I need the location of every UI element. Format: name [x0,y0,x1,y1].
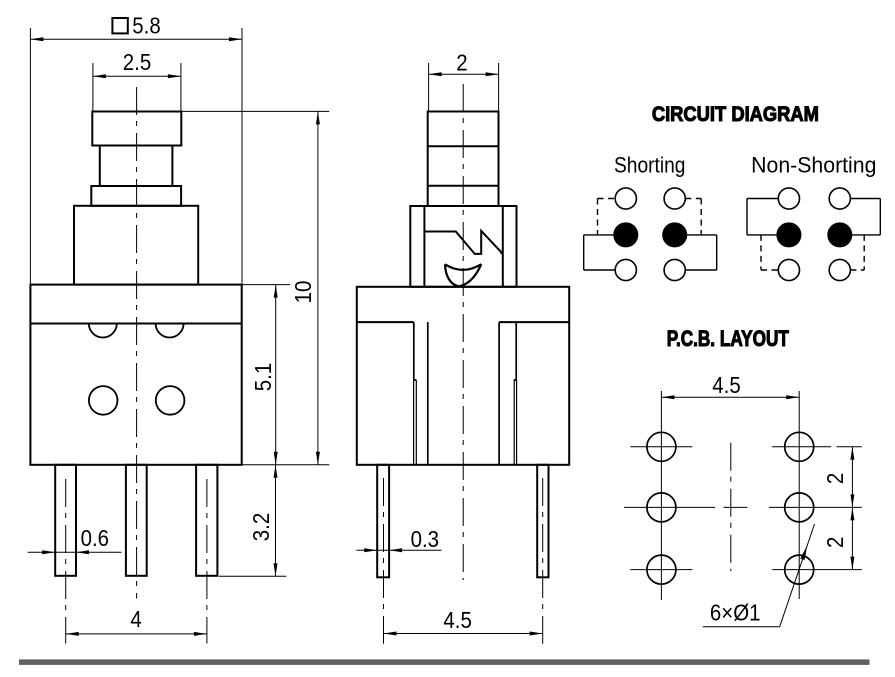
svg-text:2: 2 [822,473,849,484]
svg-text:0.6: 0.6 [81,525,109,552]
svg-text:2: 2 [456,49,467,76]
svg-text:P.C.B. LAYOUT: P.C.B. LAYOUT [667,327,789,352]
svg-text:Non-Shorting: Non-Shorting [751,152,876,178]
svg-text:CIRCUIT DIAGRAM: CIRCUIT DIAGRAM [652,103,819,127]
svg-text:2: 2 [822,537,849,548]
svg-text:4.5: 4.5 [712,372,740,399]
svg-text:0.3: 0.3 [411,526,439,553]
svg-text:5.8: 5.8 [132,12,160,39]
svg-text:6×Ø1: 6×Ø1 [710,599,761,626]
svg-text:5.1: 5.1 [250,363,277,391]
svg-text:4: 4 [130,606,141,633]
svg-text:4.5: 4.5 [443,607,471,634]
svg-text:2.5: 2.5 [123,49,151,76]
svg-text:3.2: 3.2 [248,513,275,541]
svg-text:Shorting: Shorting [614,153,685,178]
svg-text:10: 10 [290,281,317,304]
